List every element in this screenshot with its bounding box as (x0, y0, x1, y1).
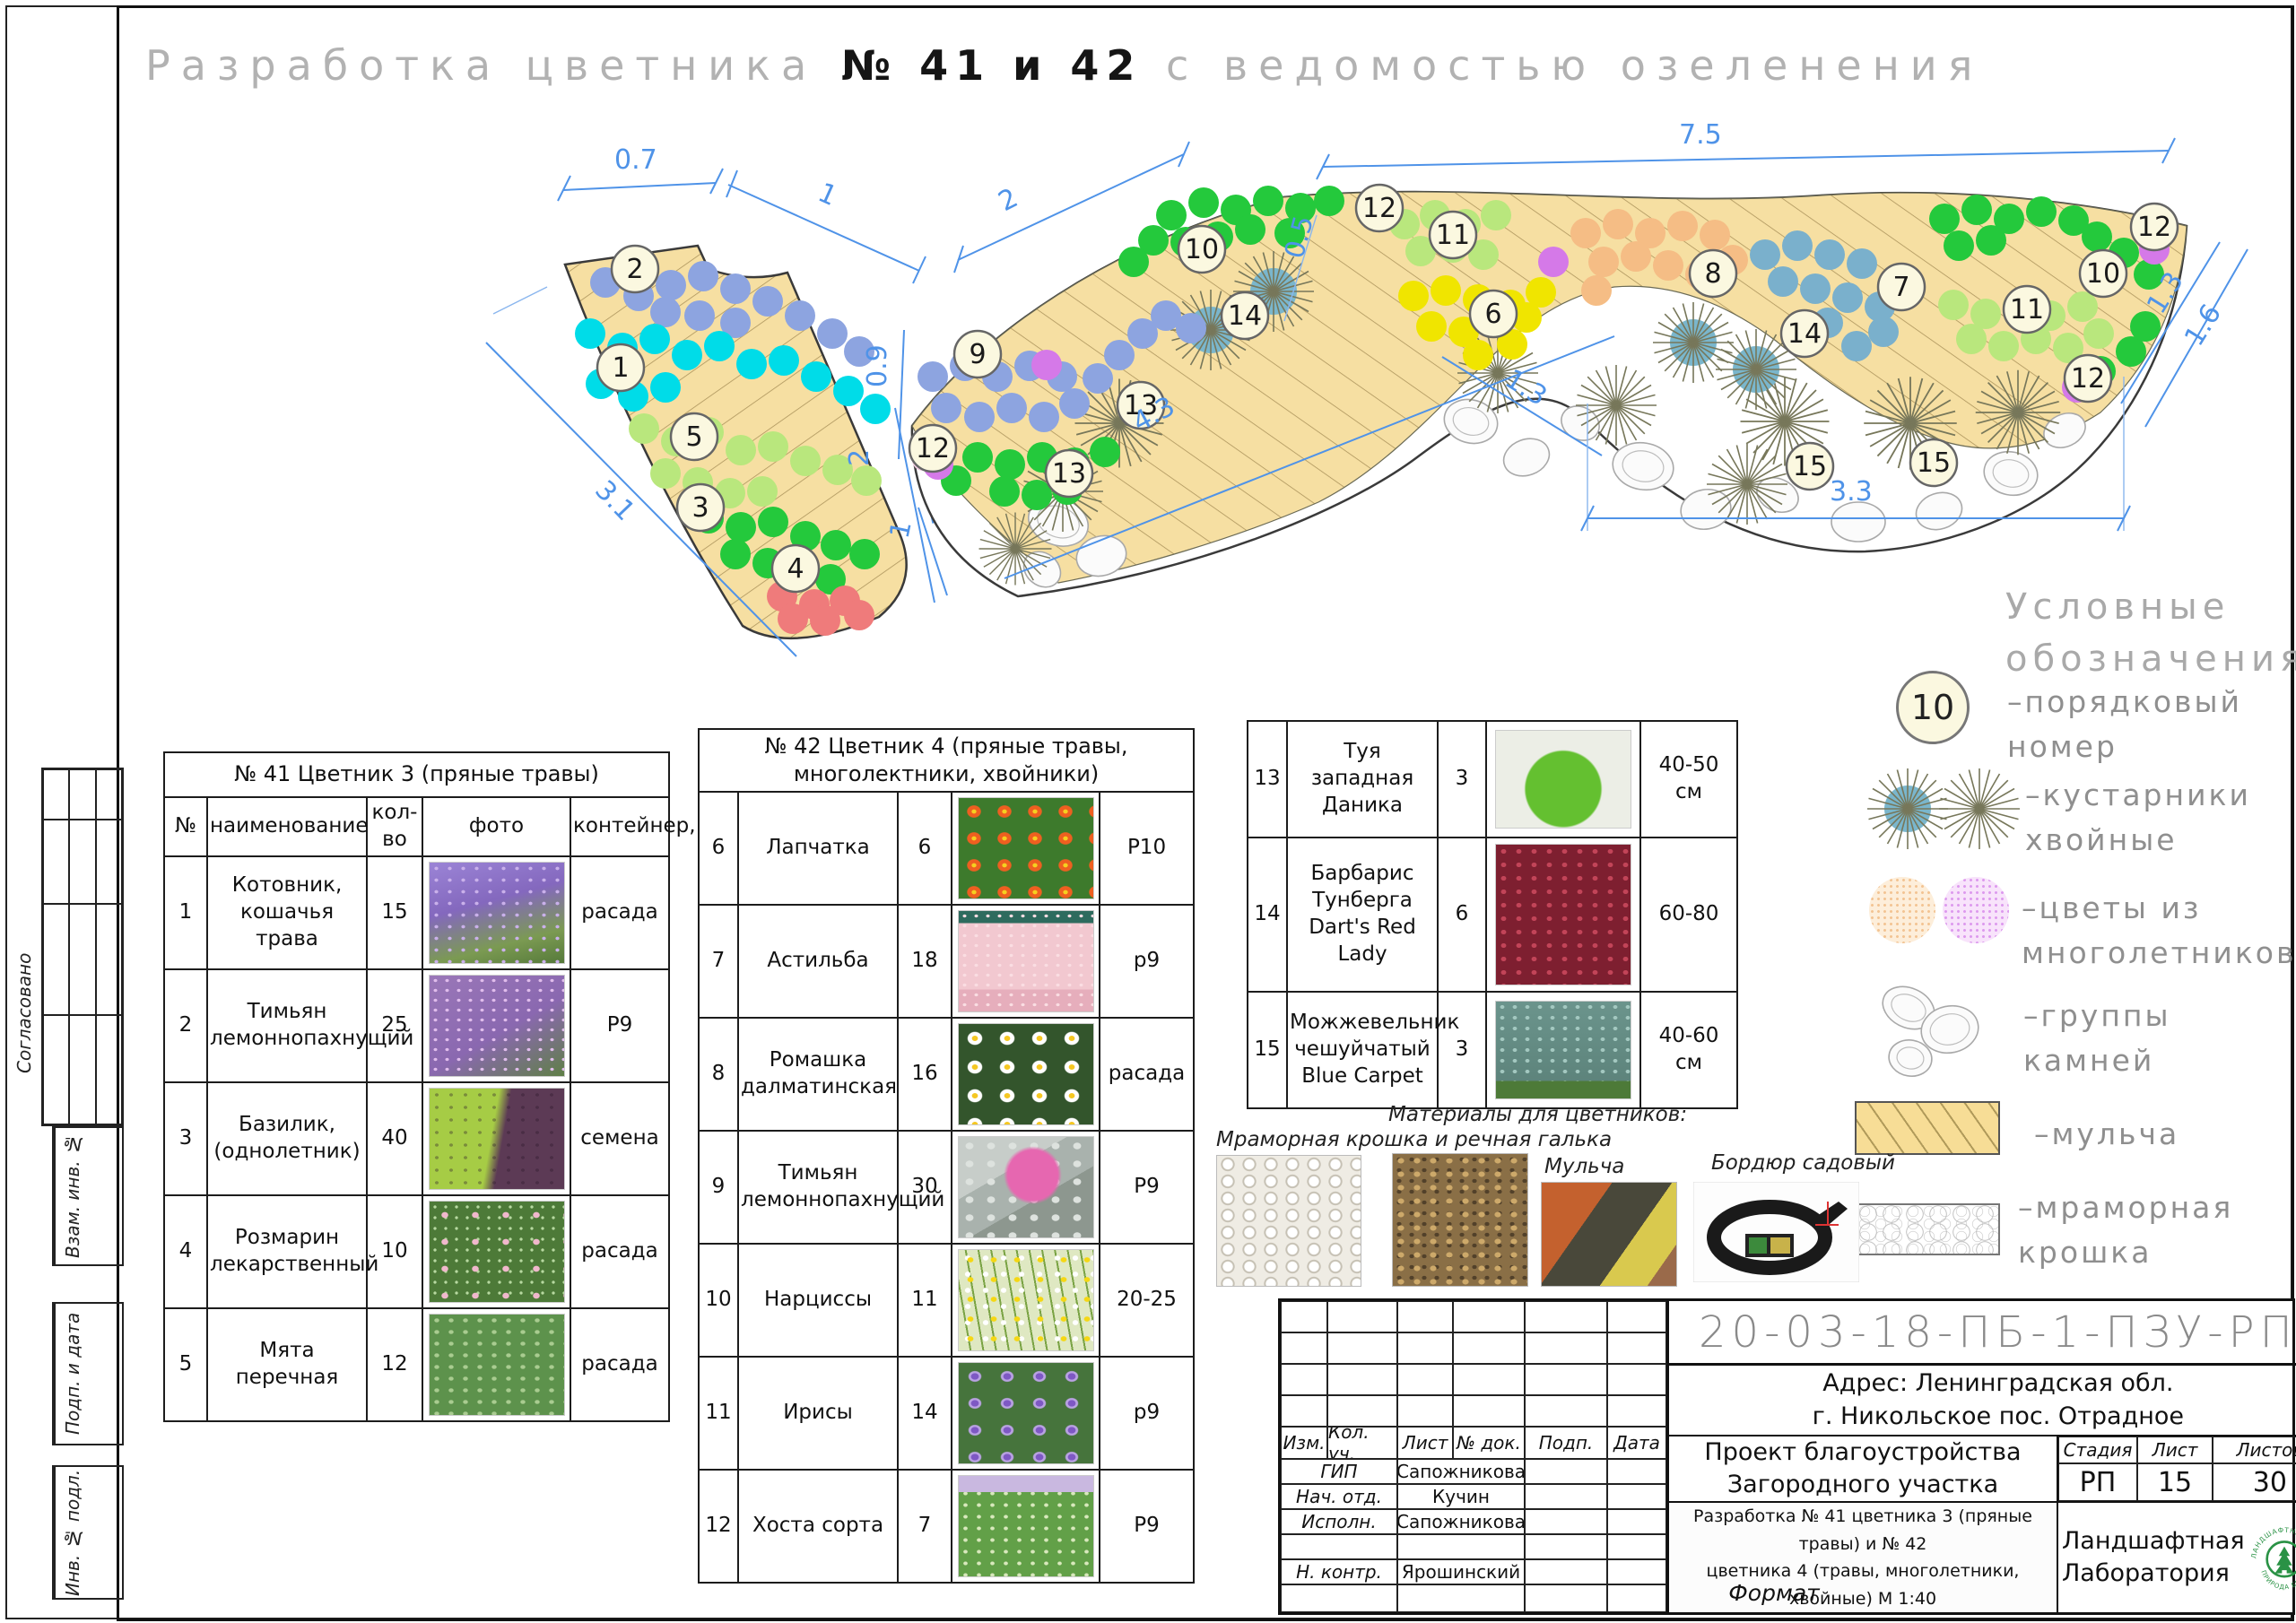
table-row: 8Ромашка далматинская 16 расада (699, 1018, 1194, 1131)
legend-marble-swatch (1855, 1203, 2000, 1255)
svg-text:11: 11 (1436, 220, 1470, 251)
border-label: Бордюр садовый (1711, 1151, 1895, 1175)
svg-text:7: 7 (1892, 272, 1909, 303)
name-nkontr: Ярошинский (1397, 1559, 1525, 1584)
svg-text:2: 2 (626, 254, 643, 285)
svg-text:1: 1 (813, 177, 842, 213)
company: Ландшафтная Лаборатория ЛАНДШАФТНАЯ ЛАБО… (2058, 1503, 2296, 1612)
name-gip: Сапожникова (1397, 1459, 1525, 1484)
legend-item-perennials: –цветы измноголетников (2022, 886, 2296, 975)
sheet-value: 15 (2137, 1463, 2213, 1502)
svg-text:11: 11 (2010, 294, 2044, 325)
drawing-sheet: Разработка цветника № 41 и 42 с ведомост… (0, 0, 2296, 1623)
table-row: 10Нарциссы 11 20-25 (699, 1244, 1194, 1357)
svg-text:9: 9 (969, 339, 986, 370)
photo-romashka (958, 1023, 1094, 1125)
table41-title: № 41 Цветник 3 (пряные травы) (164, 752, 669, 797)
table-row: 2Тимьян лемоннопахнущий 25 Р9 (164, 969, 669, 1082)
photo-kotovnik (429, 862, 565, 964)
svg-text:3.1: 3.1 (588, 474, 640, 527)
col-qty: кол-во (367, 797, 422, 856)
page-title: Разработка цветника № 41 и 42 с ведомост… (145, 41, 1983, 90)
h-izm: Изм. (1281, 1427, 1327, 1459)
svg-text:ЛАНДШАФТНАЯ ЛАБОРАТОРИЯ: ЛАНДШАФТНАЯ ЛАБОРАТОРИЯ (2245, 1518, 2296, 1564)
svg-text:5: 5 (685, 421, 702, 453)
svg-text:12: 12 (2137, 212, 2171, 243)
photo-mozhzhevelnik (1495, 1001, 1631, 1099)
stage-grid: Стадия Лист Листов РП 15 30 (2058, 1436, 2296, 1502)
col-container: контейнер, (570, 797, 669, 856)
agreed-grid (41, 768, 124, 1126)
table-flowerbed-42: № 42 Цветник 4 (пряные травы, многолектн… (698, 728, 1195, 1584)
photo-myata (429, 1314, 565, 1416)
photo-timyan-2 (958, 1136, 1094, 1238)
role-nkontr: Н. контр. (1281, 1559, 1397, 1584)
svg-text:2: 2 (994, 182, 1023, 218)
svg-text:15: 15 (1793, 451, 1827, 482)
photo-timyan (429, 975, 565, 1077)
h-podp: Подп. (1525, 1427, 1607, 1459)
legend-number-icon: 10 (1896, 671, 1970, 744)
role-nachotd: Нач. отд. (1281, 1484, 1397, 1509)
vzam-label: Взам. инв. № (54, 1128, 90, 1264)
role-ispoln: Исполн. (1281, 1509, 1397, 1534)
legend-item-number: –порядковыйномер (2007, 680, 2242, 768)
table-row: 14Барбарис Тунберга Dart's Red Lady 6 60… (1248, 838, 1737, 992)
title-block: Изм. Кол. уч. Лист № док. Подп. Дата ГИП… (1278, 1298, 2295, 1615)
svg-text:15: 15 (1917, 447, 1951, 479)
table42-title: № 42 Цветник 4 (пряные травы, многолектн… (699, 729, 1194, 792)
photo-hosta (958, 1475, 1094, 1577)
legend-title: Условные обозначения (2005, 581, 2296, 685)
role-gip: ГИП (1281, 1459, 1397, 1484)
title-prefix: Разработка цветника (145, 41, 817, 90)
photo-rozmarin (429, 1201, 565, 1303)
legend-item-mulch: –мульча (2034, 1112, 2179, 1157)
table-row: 15Можжевельник чешуйчатый Blue Carpet 3 … (1248, 992, 1737, 1108)
svg-text:10: 10 (2086, 258, 2120, 290)
table-row: 5Мята перечная 12 расада (164, 1308, 669, 1421)
photo-barbaris (1495, 844, 1631, 985)
format-label: Формат (1655, 1580, 1893, 1606)
photo-tuya (1495, 730, 1631, 829)
table-row: 3Базилик, (однолетник) 40 семена (164, 1082, 669, 1195)
table-row: 4Розмарин лекарственный 10 расада (164, 1195, 669, 1308)
col-name: наименование (207, 797, 367, 856)
sheets-value: 30 (2213, 1463, 2296, 1502)
legend-mulch-swatch (1855, 1101, 2000, 1155)
svg-text:14: 14 (1787, 318, 1822, 350)
document-code: 20-03-18-ПБ-1-ПЗУ-РП (1669, 1301, 2296, 1366)
svg-text:6: 6 (1484, 299, 1501, 330)
inv-label: Инв. № подл. (54, 1467, 90, 1598)
flowerbed-plans: 2 1 5 3 4 0.7 1 3.1 2 (430, 108, 2260, 664)
company-logo-icon: ЛАНДШАФТНАЯ ЛАБОРАТОРИЯ ПРИРОДА БЕЗ ХИМИ… (2245, 1518, 2296, 1597)
plan-bed-42: 9 12 13 13 10 14 12 11 6 8 7 14 11 10 12… (844, 119, 2248, 596)
company-name: Ландшафтная Лаборатория (2062, 1525, 2245, 1591)
photo-bazilik (429, 1088, 565, 1190)
mulch-photo (1541, 1182, 1677, 1287)
table-row: 1Котовник, кошачья трава 15 расада (164, 856, 669, 969)
plan-bed-41: 2 1 5 3 4 0.7 1 3.1 2 (486, 144, 956, 656)
garden-border-photo (1693, 1182, 1859, 1282)
svg-text:12: 12 (1362, 193, 1396, 224)
sheets-label: Листов (2213, 1436, 2296, 1463)
legend-item-conifers: –кустарникихвойные (2025, 773, 2251, 862)
table-row: 12Хоста сорта 7 Р9 (699, 1470, 1194, 1583)
sheet-label: Лист (2137, 1436, 2213, 1463)
marble-label: Мраморная крошка и речная галька (1216, 1128, 1612, 1151)
h-list: Лист (1397, 1427, 1453, 1459)
table-flowerbed-41: № 41 Цветник 3 (пряные травы) № наименов… (163, 751, 670, 1422)
title-block-grid: Изм. Кол. уч. Лист № док. Подп. Дата ГИП… (1281, 1301, 1669, 1612)
col-photo: фото (422, 797, 570, 856)
svg-text:14: 14 (1228, 300, 1262, 332)
table-shrubs: 13Туя западная Даника 3 40-50 см 14Барба… (1247, 720, 1738, 1109)
photo-lapchatka (958, 797, 1094, 899)
svg-text:12: 12 (2071, 363, 2105, 395)
address: Адрес: Ленинградская обл. г. Никольское … (1669, 1366, 2296, 1436)
pebbles-photo (1392, 1153, 1528, 1287)
legend-perennial-violet-icon (1943, 877, 2009, 943)
legend-perennial-peach-icon (1869, 877, 1935, 943)
stage-value: РП (2058, 1463, 2137, 1502)
h-ndok: № док. (1453, 1427, 1525, 1459)
table-row: 13Туя западная Даника 3 40-50 см (1248, 721, 1737, 838)
legend-item-stones: –группыкамней (2023, 994, 2171, 1082)
h-data: Дата (1607, 1427, 1666, 1459)
svg-text:1.6: 1.6 (2179, 299, 2228, 352)
project-name: Проект благоустройства Загородного участ… (1669, 1436, 2058, 1502)
svg-text:3.3: 3.3 (1830, 476, 1873, 508)
svg-text:4: 4 (787, 553, 804, 585)
svg-text:13: 13 (1052, 458, 1086, 490)
svg-text:12: 12 (916, 433, 950, 464)
agreed-label: Согласовано (9, 897, 39, 1130)
svg-text:0.9: 0.9 (862, 344, 893, 387)
svg-text:10: 10 (1185, 234, 1219, 265)
legend-item-marble: –мраморнаякрошка (2018, 1185, 2233, 1274)
photo-narcissy (958, 1249, 1094, 1351)
h-koluch: Кол. уч. (1327, 1427, 1397, 1459)
name-ispoln: Сапожникова (1397, 1509, 1525, 1534)
name-nachotd: Кучин (1397, 1484, 1525, 1509)
table-row: 11Ирисы 14 p9 (699, 1357, 1194, 1470)
photo-irisy (958, 1362, 1094, 1464)
table-row: 6Лапчатка 6 P10 (699, 792, 1194, 905)
photo-astilba (958, 910, 1094, 1012)
legend-conifer-icons (1867, 764, 2020, 854)
title-number: № 41 и 42 (841, 41, 1143, 90)
svg-text:3: 3 (691, 492, 709, 524)
table-row: 7Астильба 18 p9 (699, 905, 1194, 1018)
col-num: № (164, 797, 207, 856)
title-suffix: с ведомостью озеленения (1166, 41, 1983, 90)
svg-text:1: 1 (612, 352, 629, 384)
vzam-box: Взам. инв. № (52, 1126, 124, 1266)
inv-box: Инв. № подл. (52, 1465, 124, 1600)
stage-label: Стадия (2058, 1436, 2137, 1463)
podp-label: Подп. и дата (54, 1304, 90, 1444)
table-row: 9Тимьян лемоннопахнущий 30 Р9 (699, 1131, 1194, 1244)
svg-text:7.5: 7.5 (1679, 119, 1722, 151)
mulch-label: Мульча (1544, 1155, 1624, 1178)
legend-stones-icon (1871, 977, 1987, 1089)
marble-photo (1216, 1155, 1361, 1287)
podp-box: Подп. и дата (52, 1302, 124, 1445)
svg-text:0.7: 0.7 (614, 144, 657, 176)
svg-text:8: 8 (1704, 258, 1721, 290)
materials-title: Материалы для цветников: (1388, 1103, 1687, 1126)
svg-text:2: 2 (844, 449, 875, 466)
